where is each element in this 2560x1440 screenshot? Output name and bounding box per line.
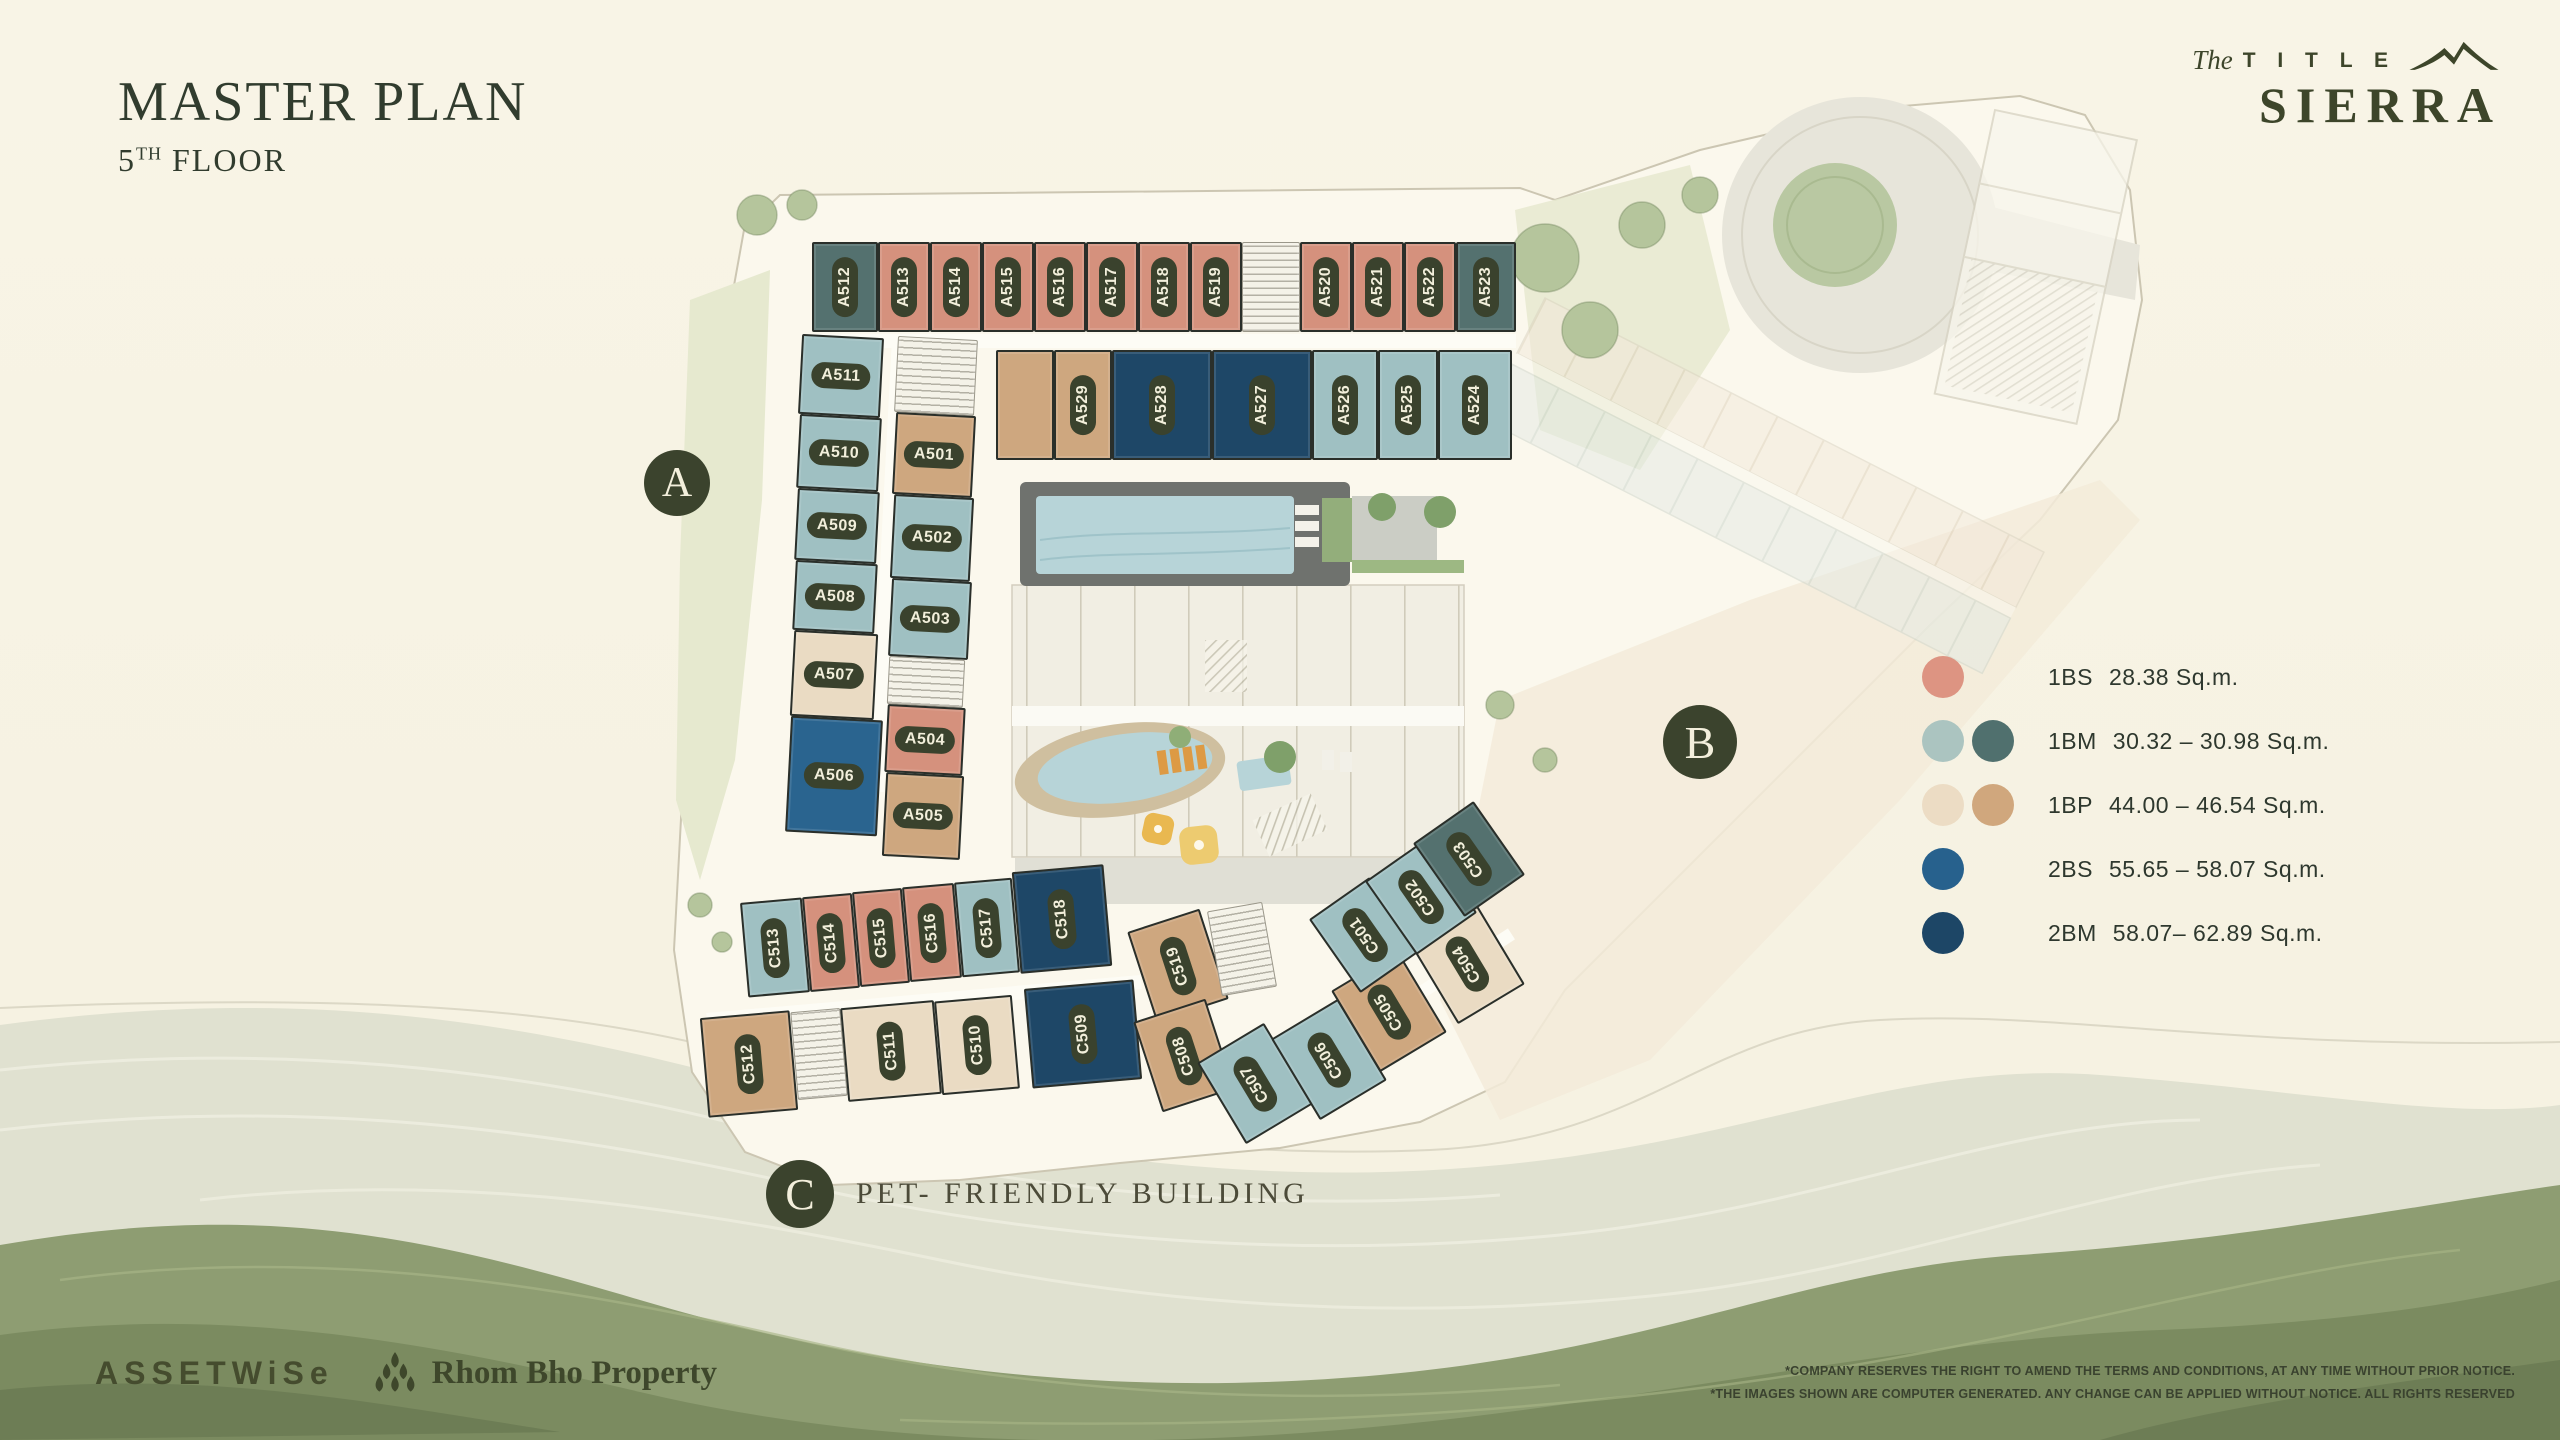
legend-label: 2BS55.65 – 58.07 Sq.m.: [2048, 856, 2326, 883]
legend-label: 2BM58.07– 62.89 Sq.m.: [2048, 920, 2323, 947]
unit-label: C515: [865, 906, 896, 968]
unit-A511: A511: [798, 334, 884, 418]
legend-dot: [1922, 912, 1964, 954]
unit-A529: A529: [1054, 350, 1112, 460]
page-header: MASTER PLAN 5TH FLOOR: [118, 70, 527, 179]
unit-A526: A526: [1312, 350, 1378, 460]
stairs-core: [790, 1008, 847, 1100]
unit-label: A525: [1395, 375, 1421, 435]
unit-A501: A501: [892, 412, 976, 498]
legend-label: 1BS28.38 Sq.m.: [2048, 664, 2239, 691]
legal-disclaimer: *COMPANY RESERVES THE RIGHT TO AMEND THE…: [1710, 1360, 2515, 1405]
unit-A507: A507: [790, 630, 878, 720]
unit-label: A518: [1151, 257, 1177, 317]
unit-label: A524: [1462, 375, 1488, 435]
legend-dot: [1922, 784, 1964, 826]
unit-A506: A506: [785, 716, 883, 837]
unit-label: A517: [1099, 257, 1125, 317]
legend-color-dots: [1922, 720, 2048, 762]
unit-C518: C518: [1012, 864, 1113, 974]
unit-label: C511: [875, 1020, 906, 1081]
unit-label: C501: [1337, 903, 1393, 967]
unit-C510: C510: [934, 995, 1020, 1095]
unit-label: C503: [1441, 827, 1497, 891]
unit-A519: A519: [1190, 242, 1242, 332]
unit-label: A514: [943, 257, 969, 317]
disclaimer-line-2: *THE IMAGES SHOWN ARE COMPUTER GENERATED…: [1710, 1383, 2515, 1406]
legend-color-dots: [1922, 912, 2048, 954]
unit-A513: A513: [878, 242, 930, 332]
unit-C517: C517: [954, 878, 1020, 978]
unit-label: C519: [1156, 933, 1199, 998]
unit-label: A523: [1473, 257, 1499, 317]
unit-label: A522: [1417, 257, 1443, 317]
unit-label: A504: [894, 725, 956, 754]
unit-A504: A504: [884, 704, 965, 776]
unit-label: C504: [1440, 931, 1493, 996]
unit-label: A528: [1149, 375, 1175, 435]
developer-logos: ASSETWiSe Rhom Bho Property: [95, 1350, 717, 1396]
brand-logo: The T I T L E SIERRA: [2192, 36, 2502, 134]
unit-label: A520: [1313, 257, 1339, 317]
pet-friendly-note: C PET- FRIENDLY BUILDING: [766, 1160, 1309, 1228]
unit-A528: A528: [1112, 350, 1212, 460]
unit-C509: C509: [1024, 979, 1142, 1088]
pet-note-text: PET- FRIENDLY BUILDING: [856, 1177, 1309, 1211]
unit-label: A513: [891, 257, 917, 317]
unit-label: A505: [892, 801, 954, 830]
unit-label: C506: [1302, 1027, 1355, 1092]
unit-label: A526: [1332, 375, 1358, 435]
unit-label: A507: [803, 660, 865, 689]
unit-C512: C512: [700, 1010, 798, 1117]
brand-the: The: [2192, 47, 2233, 74]
building-b-badge: B: [1663, 705, 1737, 779]
unit-label: A509: [806, 511, 868, 540]
unit-label: A519: [1203, 257, 1229, 317]
legend-label: 1BP44.00 – 46.54 Sq.m.: [2048, 792, 2326, 819]
brand-title-word: T I T L E: [2243, 48, 2396, 74]
unit-A512: A512: [812, 242, 878, 332]
unit-label: A527: [1249, 375, 1275, 435]
unit-label: A516: [1047, 257, 1073, 317]
master-plan-poster: A512A513A514A515A516A517A518A519A520A521…: [0, 0, 2560, 1440]
legend-color-dots: [1922, 656, 2048, 698]
unit-A522: A522: [1404, 242, 1456, 332]
legend-dot: [1922, 720, 1964, 762]
assetwise-logo: ASSETWiSe: [95, 1355, 334, 1392]
unit-C513: C513: [740, 897, 810, 997]
legend-item-2BM: 2BM58.07– 62.89 Sq.m.: [1922, 901, 2329, 965]
unit-A521: A521: [1352, 242, 1404, 332]
building-a-badge: A: [644, 450, 710, 516]
legend-item-1BM: 1BM30.32 – 30.98 Sq.m.: [1922, 709, 2329, 773]
stairs-core: [1242, 242, 1300, 332]
stairs-core: [887, 656, 965, 708]
unit-A510: A510: [796, 414, 882, 492]
unit-A515: A515: [982, 242, 1034, 332]
unit-label: C505: [1362, 979, 1415, 1044]
unit-label: A511: [811, 361, 872, 390]
legend-label: 1BM30.32 – 30.98 Sq.m.: [2048, 728, 2329, 755]
unit-label: A503: [899, 604, 961, 633]
unit-label: C512: [733, 1033, 764, 1095]
unit-A520: A520: [1300, 242, 1352, 332]
unit-type-legend: 1BS28.38 Sq.m.1BM30.32 – 30.98 Sq.m.1BP4…: [1922, 645, 2329, 965]
unit-A502: A502: [890, 494, 974, 582]
unit-label: C517: [971, 896, 1002, 958]
unit-label: C509: [1067, 1003, 1098, 1065]
unit-C515: C515: [852, 888, 910, 987]
unit-label: A512: [832, 257, 858, 317]
unit-A524: A524: [1438, 350, 1512, 460]
unit-A517: A517: [1086, 242, 1138, 332]
unit-label: A501: [903, 440, 965, 469]
unit-A514: A514: [930, 242, 982, 332]
floor-subtitle: 5TH FLOOR: [118, 142, 527, 179]
unit-label: A506: [803, 761, 865, 790]
building-c-badge: C: [766, 1160, 834, 1228]
unit-label: A529: [1070, 375, 1096, 435]
legend-item-1BS: 1BS28.38 Sq.m.: [1922, 645, 2329, 709]
page-title: MASTER PLAN: [118, 70, 527, 134]
legend-color-dots: [1922, 784, 2048, 826]
legend-color-dots: [1922, 848, 2048, 890]
unit-label: A521: [1365, 257, 1391, 317]
stairs-core: [894, 336, 978, 416]
legend-dot: [1922, 848, 1964, 890]
unit-C511: C511: [840, 1000, 942, 1102]
legend-dot: [1922, 656, 1964, 698]
unit-label: A515: [995, 257, 1021, 317]
unit-A523: A523: [1456, 242, 1516, 332]
legend-dot: [1972, 720, 2014, 762]
unit-A508: A508: [792, 560, 878, 634]
unit-label: A502: [901, 523, 963, 552]
unit-label: A510: [808, 438, 870, 467]
disclaimer-line-1: *COMPANY RESERVES THE RIGHT TO AMEND THE…: [1710, 1360, 2515, 1383]
unit-label: C510: [961, 1014, 992, 1076]
legend-item-1BP: 1BP44.00 – 46.54 Sq.m.: [1922, 773, 2329, 837]
leaf-cluster-icon: [372, 1350, 418, 1396]
unit-A525: A525: [1378, 350, 1438, 460]
stairs-core: [996, 350, 1054, 460]
unit-label: C514: [815, 911, 846, 973]
unit-A527: A527: [1212, 350, 1312, 460]
legend-dot: [1972, 784, 2014, 826]
unit-label: C513: [759, 916, 790, 978]
unit-label: C516: [916, 901, 947, 963]
mountain-icon: [2406, 36, 2502, 74]
unit-A509: A509: [794, 488, 880, 564]
unit-A518: A518: [1138, 242, 1190, 332]
rhom-bho-logo: Rhom Bho Property: [432, 1355, 717, 1392]
unit-C514: C514: [802, 893, 860, 992]
unit-C516: C516: [902, 883, 962, 982]
unit-A516: A516: [1034, 242, 1086, 332]
unit-label: C518: [1046, 888, 1077, 950]
legend-item-2BS: 2BS55.65 – 58.07 Sq.m.: [1922, 837, 2329, 901]
unit-label: C507: [1228, 1051, 1281, 1116]
unit-label: A508: [804, 582, 866, 611]
brand-name: SIERRA: [2192, 76, 2502, 134]
unit-A505: A505: [882, 772, 964, 860]
unit-label: C508: [1162, 1023, 1205, 1088]
unit-A503: A503: [888, 578, 972, 660]
